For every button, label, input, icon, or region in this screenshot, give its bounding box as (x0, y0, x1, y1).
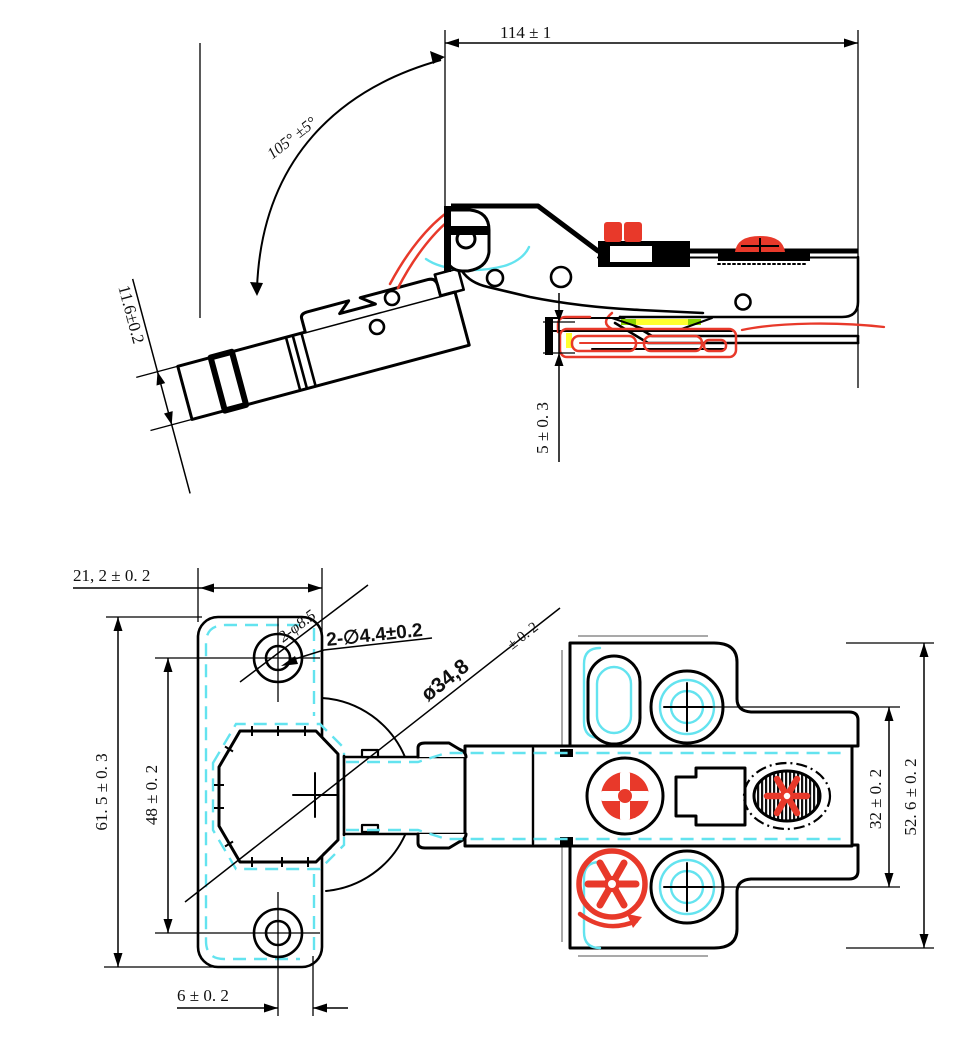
dim-overall-length-label: 114 ± 1 (500, 23, 551, 42)
dim-opening-angle-label: 105° ±5° (264, 114, 320, 163)
side-adjust-cam (744, 763, 830, 829)
cup-diameter-tol-label: ± 0. 2 (505, 619, 542, 653)
knuckle (447, 210, 489, 271)
dim-flange-height-label: 61. 5 ± 0. 3 (92, 753, 111, 830)
plate-red-edge (606, 313, 612, 329)
hinge-cup-plan (213, 724, 344, 869)
arm-underside (462, 271, 703, 313)
drawing-canvas: 114 ± 1 105° ±5° 1 (0, 0, 966, 1055)
mounting-plate-section: 5 ± 0. 3 (533, 293, 736, 462)
dim-plate-hole-spacing: 32 ± 0. 2 (866, 707, 894, 887)
cup-link (435, 268, 464, 295)
rivet-hole (487, 270, 503, 286)
dim-plate-length: 52. 6 ± 0. 2 (846, 643, 934, 948)
insert-yellow (636, 319, 688, 325)
dim-flange-width-label: 21, 2 ± 0. 2 (73, 566, 150, 585)
clip-tab-bottom (418, 834, 466, 848)
dim-edge-distance-label: 6 ± 0. 2 (177, 986, 229, 1005)
cam-screw-side (735, 236, 785, 252)
depth-adjust-screw (604, 222, 642, 242)
arm-hole (736, 295, 751, 310)
screw-holes-label: 2-∅4.4±0.2 (325, 620, 423, 651)
dim-hole-spacing: 48 ± 0. 2 (142, 658, 173, 933)
arm-notch (676, 768, 745, 825)
plan-view: ø34,8 ± 0. 2 2-φ8.5 2-∅4.4±0.2 21, 2 ± 0… (73, 566, 934, 1016)
rivet-hole (551, 267, 571, 287)
clip-tab-top (418, 743, 466, 757)
dim-hole-spacing-label: 48 ± 0. 2 (142, 765, 161, 825)
side-view: 114 ± 1 105° ±5° 1 (111, 23, 884, 499)
dim-plate-height-label: 5 ± 0. 3 (533, 402, 552, 454)
dim-plate-length-label: 52. 6 ± 0. 2 (901, 758, 920, 835)
hinge-cup-side: 11.6±0.2 (111, 197, 496, 499)
dim-opening-angle: 105° ±5° (200, 43, 445, 318)
hinge-arm-plan (344, 743, 852, 848)
dim-cup-depth-label: 11.6±0.2 (114, 283, 148, 346)
serrated-rail (718, 252, 810, 261)
dim-plate-hole-spacing-label: 32 ± 0. 2 (866, 769, 885, 829)
arm-front-edge (444, 206, 451, 272)
hinge-technical-drawing: 114 ± 1 105° ±5° 1 (0, 0, 966, 1055)
